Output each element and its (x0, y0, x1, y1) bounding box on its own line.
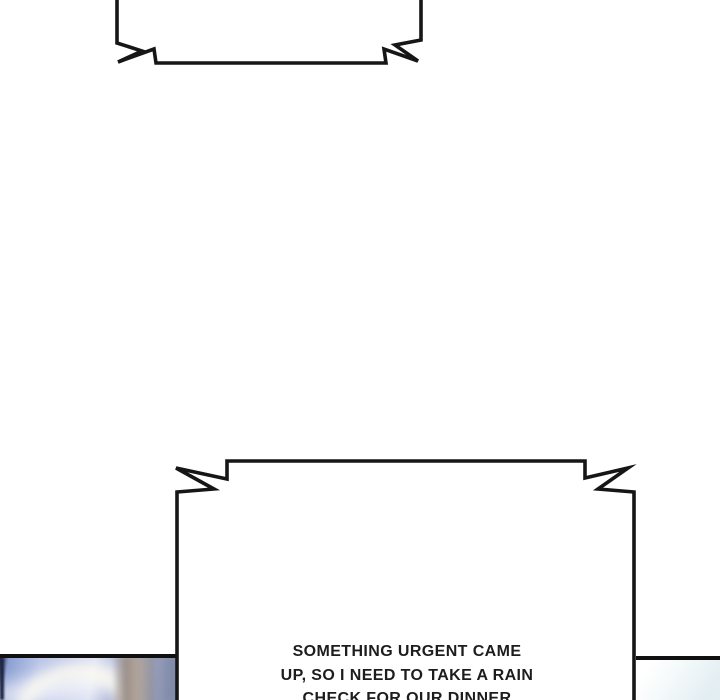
bottom-bubble-text: SOMETHING URGENT CAME UP, SO I NEED TO T… (179, 640, 635, 700)
speech-bubbles-layer (0, 0, 720, 700)
comic-page: SOMETHING URGENT CAME UP, SO I NEED TO T… (0, 0, 720, 700)
dialogue-line: SOMETHING URGENT CAME (179, 640, 635, 664)
dialogue-line: UP, SO I NEED TO TAKE A RAIN (179, 664, 635, 688)
dialogue-line: CHECK FOR OUR DINNER (179, 687, 635, 700)
top-speech-bubble-outline (117, 0, 421, 63)
